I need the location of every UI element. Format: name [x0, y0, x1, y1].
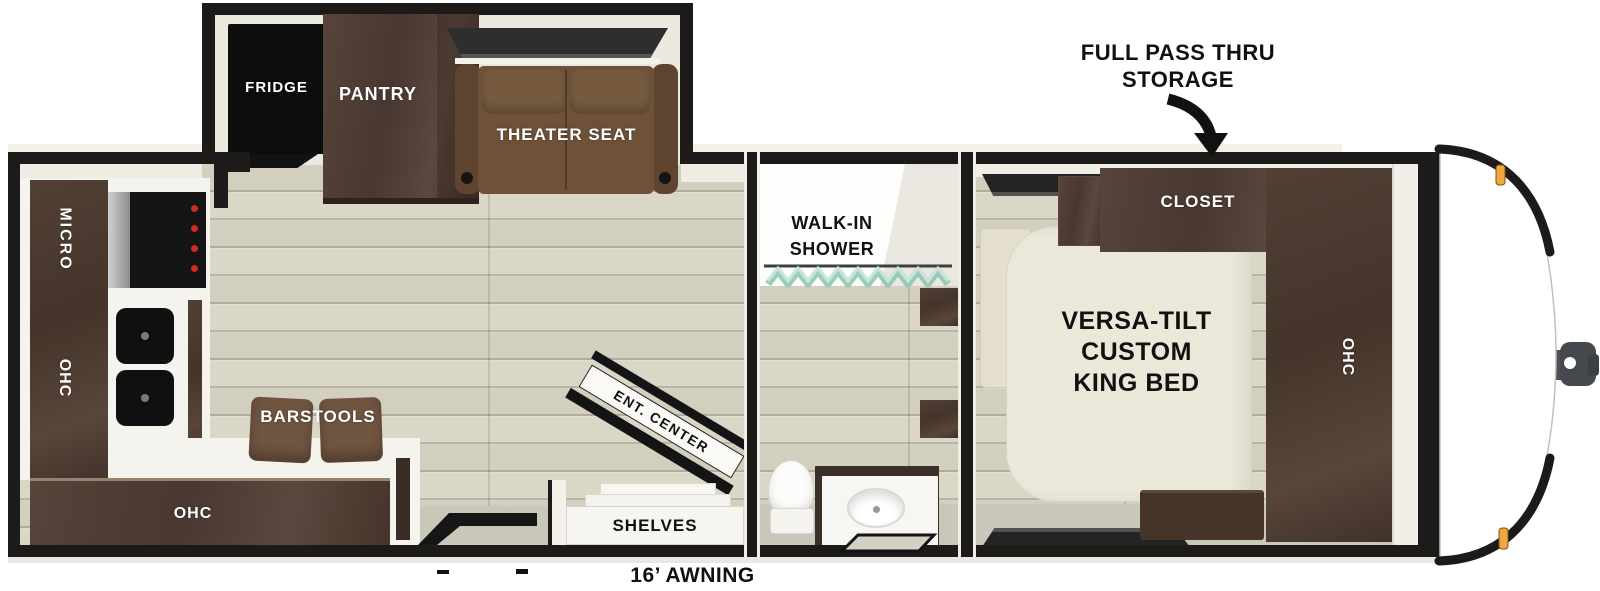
- awning-tick-2: [516, 569, 528, 574]
- rv-floorplan: FRIDGE PANTRY THEATER SEAT OHC MICRO OHC…: [0, 0, 1600, 591]
- pass-thru-arrow-curve: [1168, 99, 1211, 136]
- entry-door-step: [418, 513, 537, 545]
- pass-thru-arrow-head: [1194, 133, 1228, 157]
- bath-mat: [842, 535, 934, 551]
- hitch-tongue: [1588, 354, 1599, 376]
- overlay-graphics: [0, 0, 1600, 591]
- hitch-gap: [1564, 357, 1576, 369]
- marker-light-top: [1496, 165, 1505, 185]
- marker-light-bottom: [1499, 528, 1508, 549]
- awning-tick-1: [437, 570, 449, 574]
- barstools-label: BARSTOOLS: [248, 407, 388, 427]
